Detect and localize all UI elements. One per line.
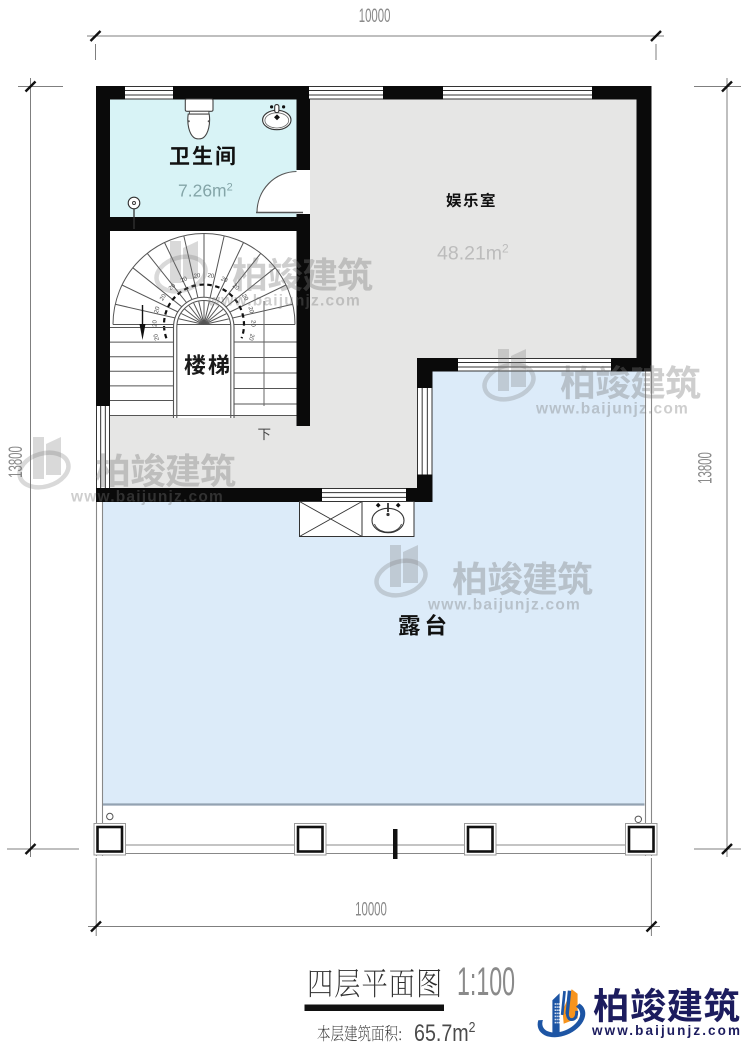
svg-text:www.baijunjz.com: www.baijunjz.com	[535, 401, 689, 418]
svg-text:www.baijunjz.com: www.baijunjz.com	[70, 489, 224, 506]
svg-text:65.7m2: 65.7m2	[414, 1019, 476, 1047]
svg-text:www.baijunjz.com: www.baijunjz.com	[591, 1023, 742, 1038]
svg-text:13800: 13800	[696, 452, 717, 484]
svg-text:www.baijunjz.com: www.baijunjz.com	[207, 293, 361, 310]
svg-text:10000: 10000	[359, 6, 391, 27]
svg-text:www.baijunjz.com: www.baijunjz.com	[427, 597, 581, 614]
svg-text:7.26m2: 7.26m2	[178, 181, 233, 201]
svg-text:20: 20	[152, 319, 158, 326]
svg-text:20: 20	[249, 320, 255, 327]
svg-text:48.21m2: 48.21m2	[437, 242, 509, 265]
svg-text:10000: 10000	[355, 900, 387, 921]
svg-text:1:100: 1:100	[457, 958, 515, 1003]
